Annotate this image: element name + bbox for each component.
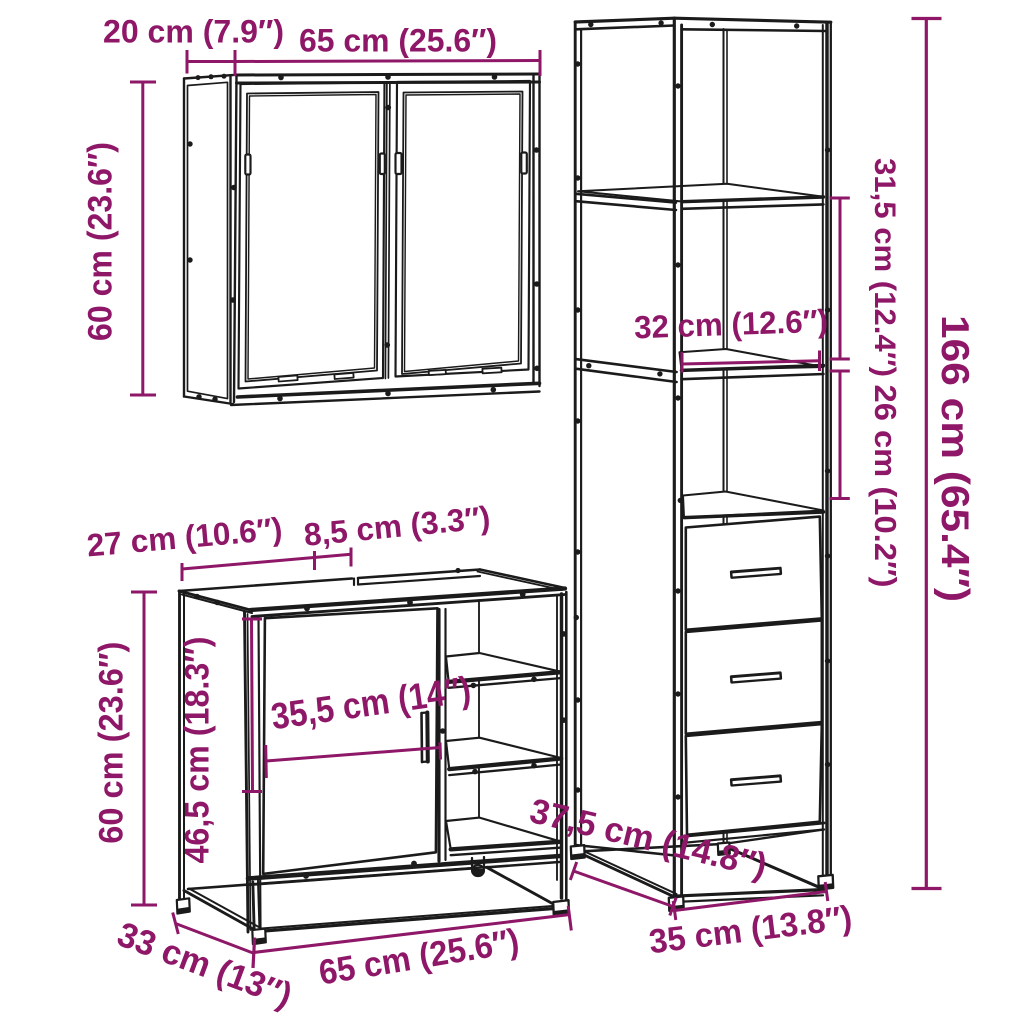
svg-text:32 cm (12.6″): 32 cm (12.6″) [633, 303, 828, 346]
svg-text:60 cm (23.6″): 60 cm (23.6″) [93, 642, 131, 844]
svg-text:166 cm (65.4″): 166 cm (65.4″) [933, 315, 976, 602]
svg-text:46,5 cm (18.3″): 46,5 cm (18.3″) [179, 637, 217, 864]
svg-text:60 cm (23.6″): 60 cm (23.6″) [82, 142, 120, 341]
svg-text:20 cm (7.9″): 20 cm (7.9″) [103, 14, 284, 50]
svg-text:65 cm (25.6″): 65 cm (25.6″) [299, 23, 497, 59]
svg-text:26 cm (10.2″): 26 cm (10.2″) [868, 385, 903, 588]
svg-text:31,5 cm (12.4″): 31,5 cm (12.4″) [868, 158, 901, 377]
